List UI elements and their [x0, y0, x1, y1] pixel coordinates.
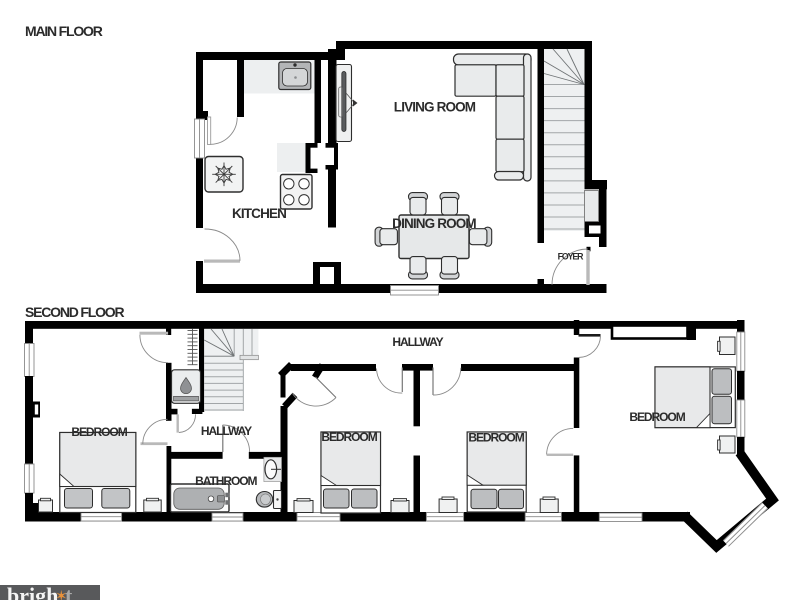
svg-text:HALLWAY: HALLWAY [201, 424, 252, 438]
svg-text:MAIN FLOOR: MAIN FLOOR [25, 23, 103, 39]
svg-text:BEDROOM: BEDROOM [71, 425, 127, 439]
svg-text:FOYER: FOYER [558, 252, 585, 262]
svg-text:BEDROOM: BEDROOM [321, 430, 377, 444]
svg-text:BATHROOM: BATHROOM [195, 474, 257, 488]
svg-text:brigh: brigh [7, 583, 58, 600]
svg-text:DINING ROOM: DINING ROOM [392, 216, 476, 231]
svg-text:SECOND FLOOR: SECOND FLOOR [25, 304, 124, 320]
svg-text:BEDROOM: BEDROOM [468, 431, 524, 445]
svg-text:t: t [65, 583, 73, 600]
svg-text:HALLWAY: HALLWAY [392, 335, 443, 349]
svg-text:BEDROOM: BEDROOM [629, 410, 685, 424]
svg-text:KITCHEN: KITCHEN [232, 206, 286, 221]
svg-text:LIVING ROOM: LIVING ROOM [394, 100, 476, 115]
